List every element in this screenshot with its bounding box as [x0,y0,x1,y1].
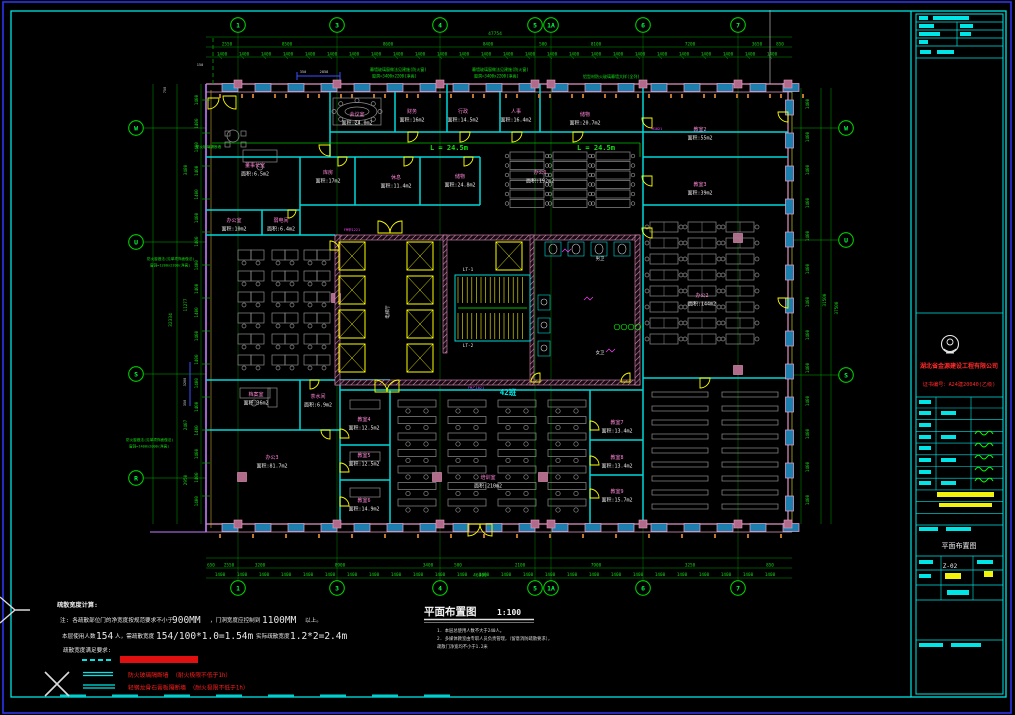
core-labels: 电梯厅 LT-1 LT-2 男卫 女卫 FM甲1221 FM乙1021 M102… [344,127,662,390]
note-l2d: 154/100*1.0=1.54m [156,631,254,642]
dim-tick: 1400 [479,572,490,578]
dim-segment: 3650 [752,42,763,48]
dim-tick: 1400 [805,131,811,142]
plan-note-2: 2. 多媒体教室由专职人员负责管理，（留意消防疏散要求）， [437,635,552,642]
room-area: 面积:6.9m2 [304,402,332,409]
room-area: 面积:39m2 [687,190,712,197]
note-l1a: 注: 各疏散部位门的净宽度按规范要求不小于 [60,616,173,624]
drawing-name: 平面布置图 [942,541,977,550]
legend-item-2: 防火玻璃隔断墙 （耐火极限不低于1h） [128,671,231,679]
room-name: 财务 [407,108,417,115]
dim-tick: 1400 [805,494,811,505]
curtain-note-3: 铝型材防火玻璃幕墙大样(全列) [583,73,640,79]
titleblock: 湖北省金源建设工程有限公司 证书编号：A24建20040(乙级) 平面布置图 Z… [916,14,1003,694]
room-name: 办公2 [695,292,708,299]
room-area: 面积:6.4m2 [267,226,295,233]
room-area: 面积:14.9m2 [348,506,379,513]
titleblock-text-bar [960,32,971,36]
grid-bubble-label: 3 [335,585,339,593]
legend: 防火玻璃隔断墙 （耐火极限不低于1h） 轻钢龙骨石膏板隔断墙 （耐火极限不低于1… [0,597,249,696]
grid-bubble-label: S [134,371,138,379]
dim-blue: 350 [300,70,307,74]
left-note-1b: 窗洞=1200x2200(净高) [150,263,190,268]
dim-total-left: 32334 [168,313,174,327]
door-tag-1: FM甲1221 [344,228,360,232]
room-labels: 会议室面积:24.0m2财务面积:16m2行政面积:14.5m2人事面积:16.… [221,108,716,513]
door-swing [340,497,349,506]
curtain-note-2: 幕墙玻璃窗做法见建施(防火窗) [472,66,529,72]
door-swing [378,221,390,233]
dim-tick: 1400 [194,401,200,412]
dim-tick: 1400 [805,263,811,274]
titleblock-text-bar [919,435,931,439]
grid-bubble-label: S [844,372,848,380]
room-area: 面积:13.4m2 [601,463,632,470]
dim-tick: 1400 [194,212,200,223]
room-name: 培训室 [480,474,495,481]
signature-scribble [975,467,993,471]
dim-tick: 1400 [545,572,556,578]
dim-segment: 850 [766,563,774,569]
edge-y-mark [0,597,30,623]
room-area: 面积:20.7m2 [569,120,600,127]
dim-tick: 1400 [765,572,776,578]
titleblock-text-bar [941,481,956,485]
dim-tick: 1400 [589,572,600,578]
note-l3: 疏散宽度满足要求: [63,646,111,654]
dim-tick: 1400 [805,395,811,406]
door-swing [223,96,236,109]
door-swing [319,145,330,156]
door-swing [404,157,413,166]
dim-tick: 1400 [194,94,200,105]
left-note-1: 防火窗做法(见单项饰面做法) [147,256,194,261]
titleblock-text-bar [919,643,943,647]
left-note-2b: 窗洞=1400x2000(净高) [129,444,169,449]
note-l1d: 1100MM [262,615,297,626]
dim-tick: 1400 [281,572,292,578]
titleblock-text-bar [960,24,973,28]
room-name: 办公3 [265,454,278,461]
titleblock-text-bar [941,411,956,415]
dim-segment: 3480 [183,164,189,175]
room-name: 教室3 [693,181,706,188]
dim-tick: 1400 [303,572,314,578]
room-area: 面积:17m2 [315,178,340,185]
dim-tick: 1400 [347,572,358,578]
signature-scribble [975,455,993,459]
titleblock-text-bar [919,411,931,415]
dim-tick: 1400 [325,572,336,578]
dim-tick: 1400 [369,572,380,578]
dim-tick: 1400 [805,230,811,241]
dim-segment: 650 [207,563,215,569]
dim-tick: 1400 [523,572,534,578]
dim-segment: 500 [454,563,462,569]
dim-tick: 1400 [611,572,622,578]
titleblock-text-bar [919,24,934,28]
stair2-label: LT-2 [463,343,474,349]
titleblock-text-bar [919,574,931,578]
dim-tick: 1400 [194,260,200,271]
room-name: 董事长室 [245,162,265,169]
room-area: 面积:15.7m2 [601,497,632,504]
titleblock-highlight-bar [984,571,993,577]
room-name: 教室4 [357,416,370,423]
door-swing [468,524,480,536]
dim-tick: 1400 [567,572,578,578]
dim-tick: 1400 [655,572,666,578]
door-swing [700,378,710,388]
cad-canvas[interactable]: 4775446800323342550850086008400500810072… [0,0,1015,715]
dim-tick: 1400 [805,329,811,340]
titleblock-fields [916,16,1003,647]
dim-tick: 1400 [194,236,200,247]
floor-plan-drawing[interactable]: 4775446800323342550850086008400500810072… [0,0,1015,715]
note-l2e: 实际疏散宽度 [256,632,290,640]
plan-scale: 1:100 [497,608,521,617]
dim-segment: 2550 [224,563,235,569]
green-annotations: 幕墙玻璃窗做法见建施(防火窗) 窗洞=3400x2200(净高) 幕墙玻璃窗做法… [126,66,640,449]
curtain-note-1b: 窗洞=3400x2200(净高) [372,73,417,79]
grid-bubble-label: 7 [736,22,740,30]
company-logo [942,336,959,354]
room-name: 弱电间 [273,217,288,224]
plan-note-1: 1. 本层总使用人数不大于240人。 [437,627,504,634]
note-l1b: 900MM [172,615,201,626]
titleblock-text-bar [919,40,928,44]
grid-bubble-label: 5 [533,585,537,593]
room-area: 面积:55m2 [687,135,712,142]
signature-scribble [975,431,993,435]
dim-segment: 2550 [222,42,233,48]
grid-bubble-label: 6 [641,22,645,30]
titleblock-text-bar [919,446,931,450]
dim-tick: 1400 [194,283,200,294]
corridor-length-2: L = 24.5m [577,144,615,152]
drawing-frame [11,11,1006,697]
door-swing [321,430,330,439]
door-swing [310,380,319,389]
dim-tick: 1400 [805,461,811,472]
dim-tick: 1400 [805,98,811,109]
room-area: 面积:11.4m2 [380,183,411,190]
room-name: 办公室 [226,217,241,224]
dim-tick: 1400 [194,472,200,483]
dim-segment: 7900 [591,563,602,569]
room-name: 教室9 [610,488,623,495]
dim-segment: 7200 [685,42,696,48]
titleblock-text-bar [919,481,931,485]
dim-tick: 1400 [194,307,200,318]
room-area: 面积:144m2 [688,301,716,308]
dim-tick: 1400 [457,572,468,578]
door-swing [590,421,599,430]
room-area: 面积:12.5m2 [348,425,379,432]
titleblock-text-bar [919,470,931,474]
room-name: 储物 [455,173,465,180]
titleblock-highlight-bar [939,503,992,507]
titleblock-text-bar [937,50,954,54]
door-swing [590,489,599,498]
dim-tick: 1400 [435,572,446,578]
door-tag-2: FM乙1021 [468,385,484,390]
dim-tick: 1400 [633,572,644,578]
outer-blue-border [3,2,1011,713]
room-name: 教室8 [610,454,623,461]
dim-segment: 3200 [255,563,266,569]
grid-bubble-label: 4 [438,22,442,30]
dim-segment: 2950 [183,474,189,485]
room-area: 面积:14.5m2 [447,117,478,124]
note-l1c: ，门洞宽度应控制到 [210,616,261,624]
grid-bubble-label: W [844,125,848,133]
note-l2b: 154 [96,631,113,642]
door-swing [573,132,583,142]
note-l2c: 人，需疏散宽度 [115,632,155,640]
room-name: 人事 [511,108,521,115]
dim-blue: 350 [183,400,187,407]
dim-segment: 8400 [483,42,494,48]
door-swing [460,132,470,142]
room-area: 面积:24.8m2 [444,182,475,189]
dim-tick: 1400 [194,165,200,176]
titleblock-text-bar [919,527,938,531]
titleblock-highlight-bar [945,573,961,579]
dim-segment: 8500 [282,42,293,48]
elevator-hall-label: 电梯厅 [384,305,391,319]
dim-segment: 3400 [423,563,434,569]
dim-blue: 3200 [183,378,187,387]
dim-tick: 1400 [259,572,270,578]
grid-bubble-label: 7 [736,585,740,593]
grid-bubble-label: 1 [236,22,240,30]
titleblock-text-bar [951,643,981,647]
room-area: 面积:10m2 [221,226,246,233]
room-name: 办公1 [533,169,546,176]
room-name: 库房 [323,169,333,176]
dim-tick: 1400 [699,572,710,578]
curtain-wall-windows [202,80,804,538]
stair1-label: LT-1 [463,267,474,273]
room-area: 面积:36m2 [243,400,268,407]
signature-scribble [975,443,993,447]
dim-blue: 2858 [320,70,329,74]
dim-segment: 500 [539,42,547,48]
dim-tick: 1400 [215,572,226,578]
grid-bubble-label: 6 [641,585,645,593]
train-count-label: 42班 [500,387,517,397]
dim-tick: 1400 [194,330,200,341]
company-name: 湖北省金源建设工程有限公司 [920,362,998,370]
dim-tick: 1400 [743,572,754,578]
titleblock-text-bar [919,400,931,404]
dim-segment: 8600 [383,42,394,48]
grid-bubble-label: 1 [236,585,240,593]
signature-scribble [975,478,993,482]
dim-tick: 1400 [805,296,811,307]
corridor-length-1: L = 24.5m [430,144,468,152]
wc-female-label: 女卫 [596,349,605,356]
dim-segment: 2100 [515,563,526,569]
dim-tick: 1400 [194,425,200,436]
room-area: 面积:16.4m2 [500,117,531,124]
dim-segment: 850 [776,42,784,48]
company-cert: 证书编号：A24建20040(乙级) [923,380,996,388]
dim-segment: 11277 [183,298,189,311]
titleblock-text-bar [919,423,931,427]
drawing-number: Z-02 [943,563,958,570]
room-area: 面积:192m2 [526,178,554,185]
grid-bubble-label: 3 [335,22,339,30]
dim-tick: 1400 [805,362,811,373]
room-name: 档案室 [248,391,263,398]
dim-segment: 2407 [183,419,189,430]
dim-tick: 1400 [805,197,811,208]
grid-bubble-label: U [844,237,848,245]
dim-misc: 750 [163,87,167,94]
dim-segment: 37500 [834,301,840,314]
plan-title: 平面布置图 [424,605,477,618]
room-area: 面积:81.7m2 [256,463,287,470]
dim-segment: 8100 [591,42,602,48]
legend-red-swatch [120,656,198,663]
titleblock-text-bar [947,590,969,595]
firewall-note: 防火玻璃隔断墙 [196,144,222,149]
titleblock-text-bar [919,16,928,20]
curtain-note-2b: 窗洞=3400x2200(净高) [474,73,519,79]
dim-tick: 1400 [805,428,811,439]
door-tag-3: M1021 [652,127,663,131]
titleblock-text-bar [941,458,956,462]
dim-segment: 8900 [335,563,346,569]
room-area: 面积:24.0m2 [341,120,372,127]
room-name: 教室2 [693,126,706,133]
room-name: 茶水间 [310,393,325,400]
door-swing [390,221,402,233]
grid-bubble-label: U [134,239,138,247]
room-name: 教室5 [357,452,370,459]
grid-bubble-label: 1A [547,585,555,593]
grid-bubble-label: R [134,475,138,483]
note-l2f: 1.2*2=2.4m [290,631,347,642]
door-swing [338,157,347,166]
dim-tick: 1400 [194,354,200,365]
room-name: 教室6 [357,497,370,504]
room-area: 面积:12.5m2 [348,461,379,468]
titleblock-text-bar [946,527,971,531]
wc-male-label: 男卫 [596,256,605,262]
titleblock-text-bar [941,435,956,439]
plan-note-3: 疏散门净宽均不小于1.2米 [437,643,488,650]
dim-tick: 1400 [413,572,424,578]
dim-segment: 31500 [822,293,828,306]
grid-bubble-label: 1A [547,22,555,30]
room-area: 面积:6.5m2 [241,171,269,178]
note-l2a: 本层使用人数 [62,632,96,640]
room-area: 面积:210m2 [474,483,502,490]
x-mark [45,672,69,696]
door-swing [288,210,296,218]
dim-tick: 1400 [391,572,402,578]
door-swing [512,132,522,142]
titleblock-text-bar [919,32,940,36]
grid-lines [144,30,839,584]
door-swing [464,157,473,166]
grid-bubble-label: 4 [438,585,442,593]
evacuation-notes: 疏散宽度计算: 注: 各疏散部位门的净宽度按规范要求不小于 900MM ，门洞宽… [57,601,347,654]
room-area: 面积:16m2 [399,117,424,124]
titleblock-highlight-bar [937,492,994,497]
dim-tick: 1400 [677,572,688,578]
dim-tick: 1400 [501,572,512,578]
titleblock-text-bar [933,16,969,20]
left-note-2: 防火窗做法(见单项饰面做法) [126,437,173,442]
dim-tick: 1400 [194,118,200,129]
dim-tick: 1400 [194,496,200,507]
dim-segment: 3250 [685,563,696,569]
grid-bubble-label: 5 [533,22,537,30]
dim-total-top: 47754 [488,31,502,37]
dim-misc: 150 [197,63,204,67]
dim-tick: 1400 [194,378,200,389]
room-name: 行政 [458,108,468,115]
dim-tick: 1400 [194,189,200,200]
titleblock-text-bar [977,560,993,564]
note-l1e: 以上。 [305,616,322,624]
dim-tick: 1400 [194,448,200,459]
dim-tick: 1400 [237,572,248,578]
room-area: 面积:13.4m2 [601,428,632,435]
dim-tick: 1400 [721,572,732,578]
titleblock-text-bar [920,50,931,54]
room-name: 休息 [391,174,401,181]
curtain-note-1: 幕墙玻璃窗做法见建施(防火窗) [370,66,427,72]
room-name: 会议室 [349,111,364,118]
dim-tick: 1400 [805,164,811,175]
titleblock-text-bar [919,560,933,564]
door-swing [408,132,418,142]
grid-bubble-label: W [134,125,138,133]
room-name: 储物 [580,111,590,118]
titleblock-text-bar [919,458,931,462]
door-swing [590,456,599,465]
room-name: 教室7 [610,419,623,426]
notes-title: 疏散宽度计算: [57,601,98,609]
legend-item-3: 轻钢龙骨石膏板隔断墙 （耐火极限不低于1h） [128,684,249,692]
plan-title-block: 平面布置图 1:100 1. 本层总使用人数不大于240人。 2. 多媒体教室由… [424,605,552,650]
